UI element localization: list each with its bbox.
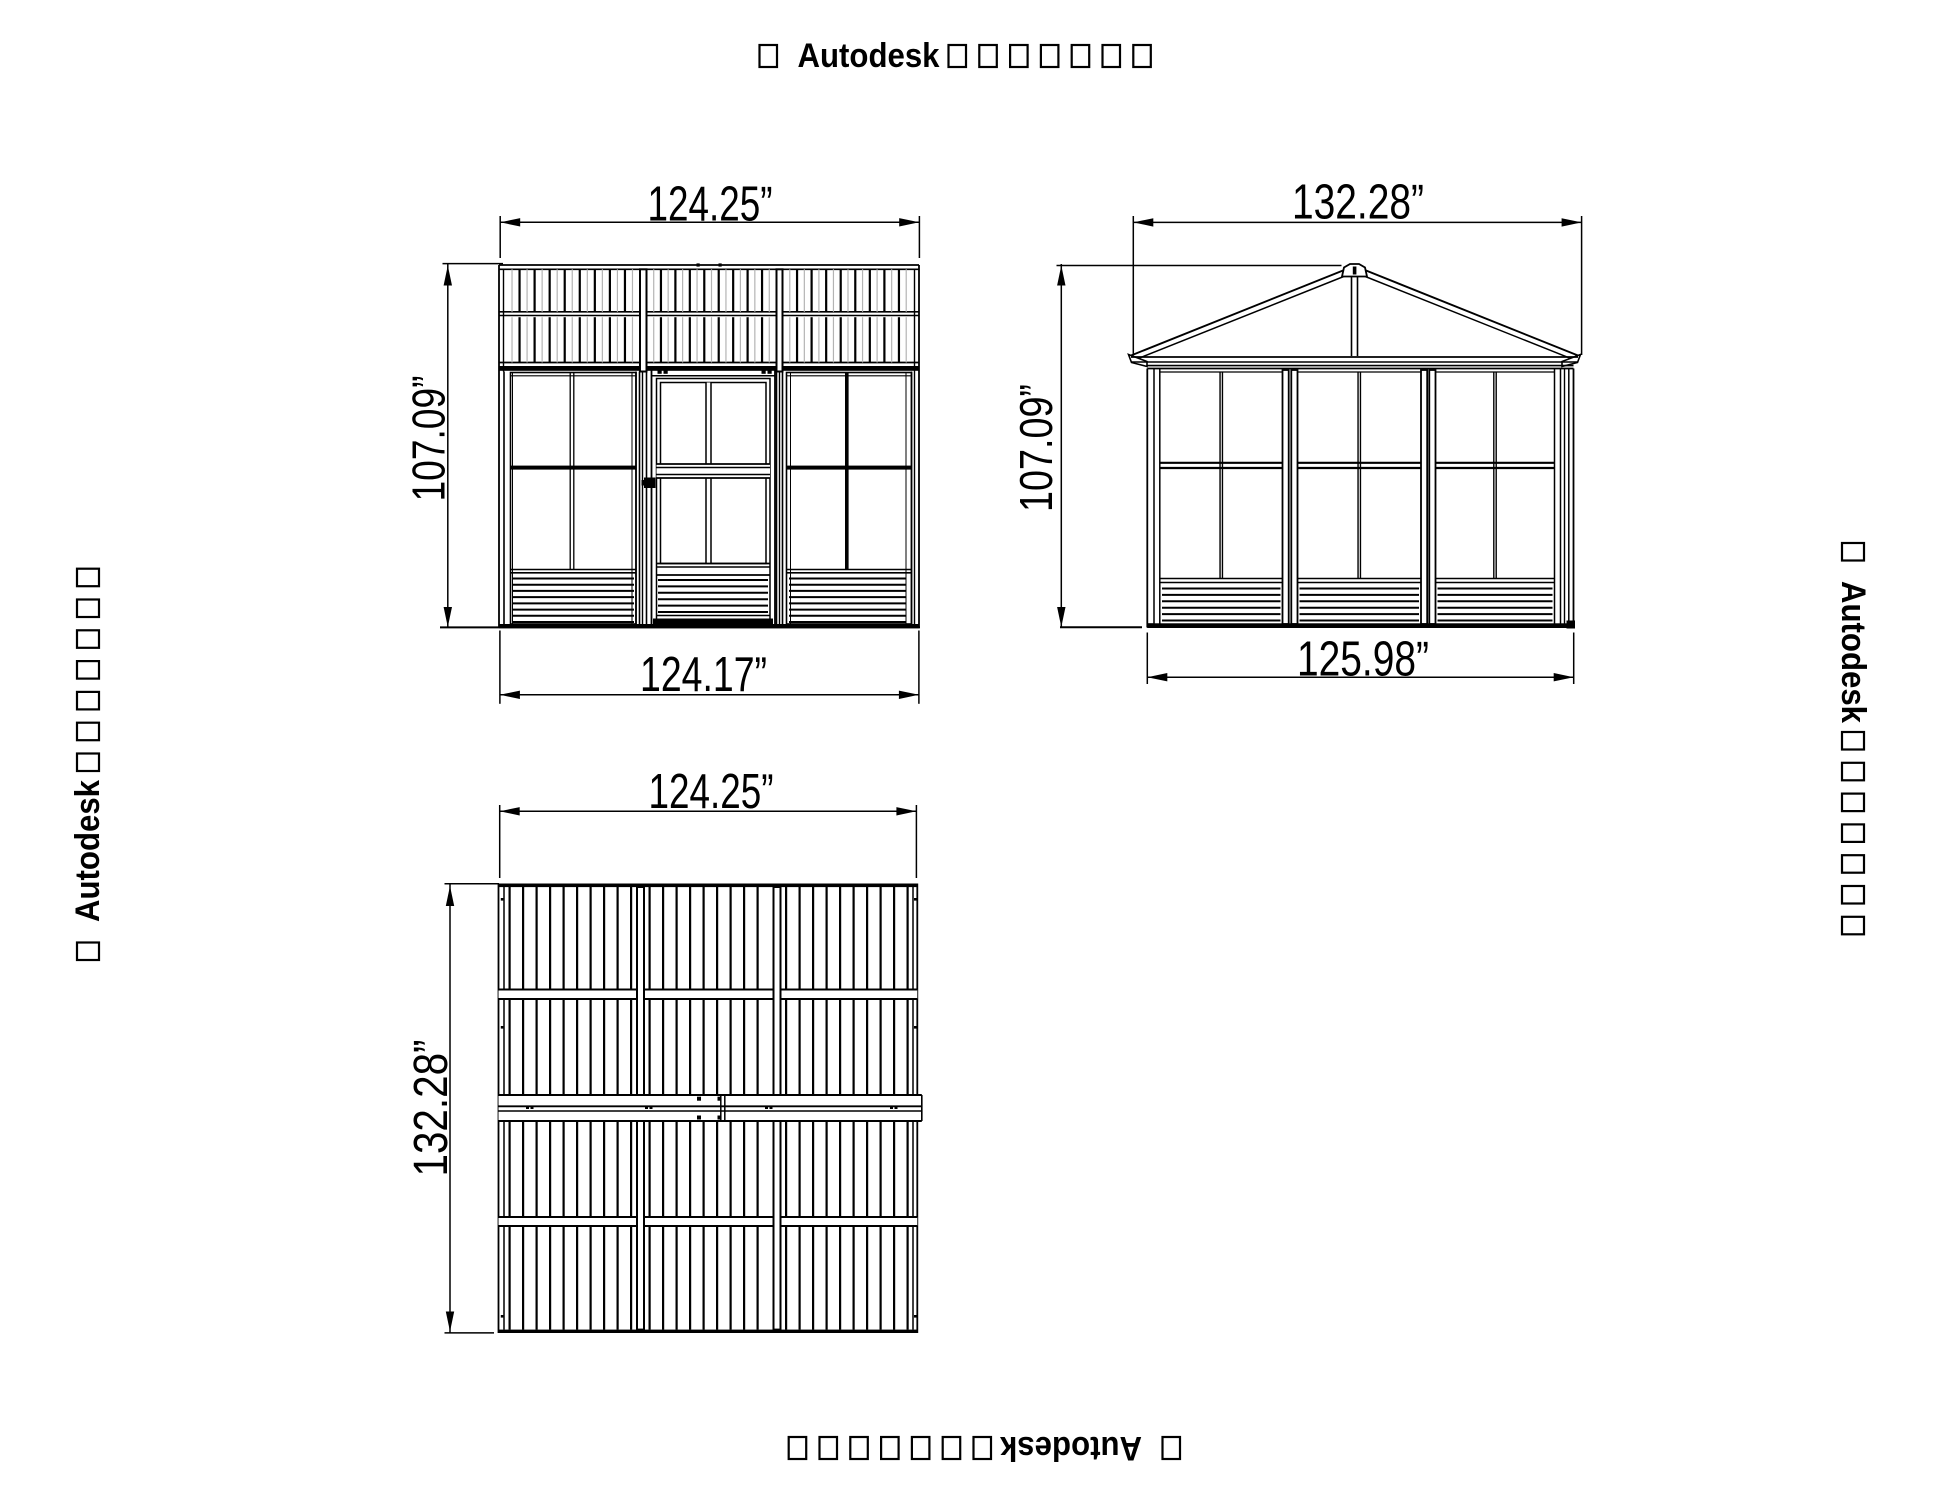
svg-text:Autodesk: Autodesk (798, 37, 940, 75)
svg-text:132.28”: 132.28” (1292, 176, 1424, 230)
svg-text:107.09”: 107.09” (403, 376, 455, 502)
svg-text:107.09”: 107.09” (1010, 384, 1062, 512)
svg-text:124.25”: 124.25” (648, 178, 773, 232)
svg-text:Autodesk: Autodesk (69, 780, 107, 922)
svg-text:Autodesk: Autodesk (1834, 581, 1872, 723)
svg-text:125.98”: 125.98” (1297, 633, 1429, 687)
svg-text:124.17”: 124.17” (640, 648, 767, 702)
svg-text:Autodesk: Autodesk (1000, 1429, 1142, 1467)
